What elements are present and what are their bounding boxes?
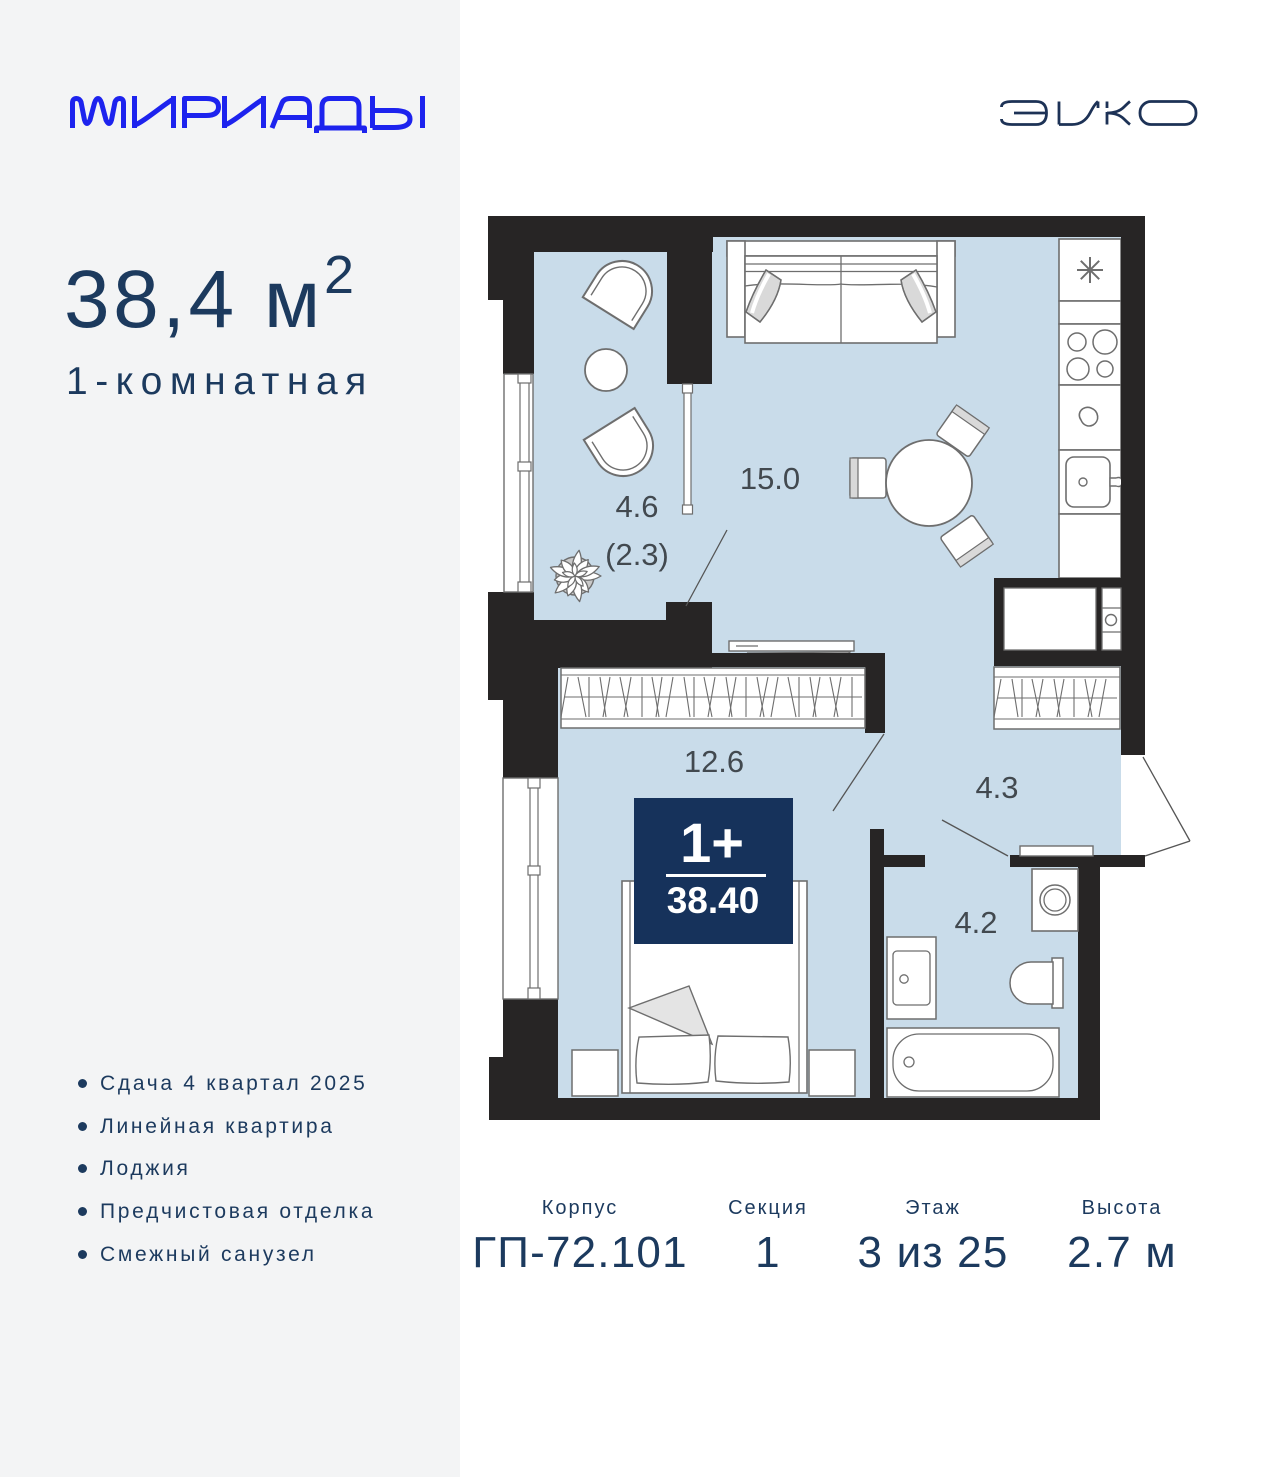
svg-text:15.0: 15.0 [740,461,800,496]
svg-text:4.6: 4.6 [615,489,658,524]
svg-text:4.2: 4.2 [954,905,997,940]
svg-text:12.6: 12.6 [684,744,744,779]
svg-text:38.40: 38.40 [667,880,760,921]
svg-text:(2.3): (2.3) [605,537,669,572]
svg-text:1+: 1+ [680,811,744,874]
svg-text:4.3: 4.3 [975,770,1018,805]
